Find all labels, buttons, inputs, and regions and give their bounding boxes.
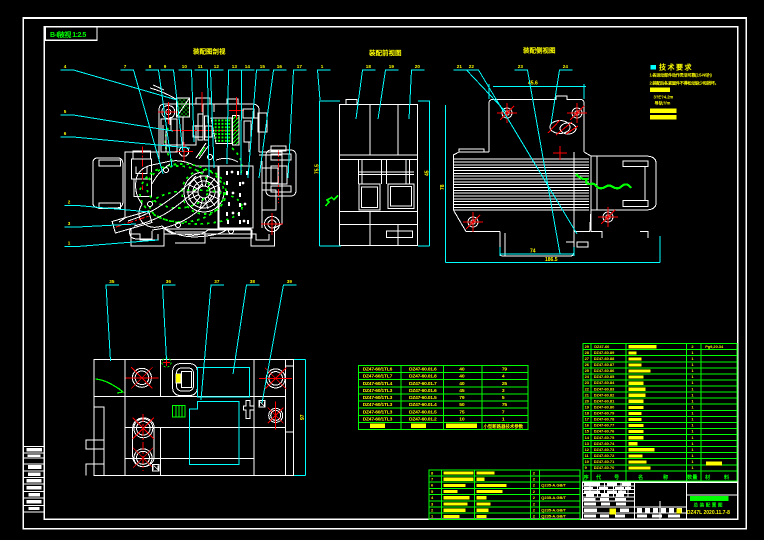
svg-text:DZ47-60: DZ47-60: [594, 344, 609, 349]
svg-text:78: 78: [440, 184, 446, 190]
svg-text:Pg9,20.34: Pg9,20.34: [705, 344, 724, 349]
svg-text:20: 20: [415, 64, 421, 69]
svg-text:小型断路器技术参数: 小型断路器技术参数: [484, 423, 524, 430]
svg-text:DZ47-60.78: DZ47-60.78: [594, 417, 615, 422]
svg-text:DZ47-60.83: DZ47-60.83: [594, 386, 615, 391]
svg-text:14: 14: [245, 64, 251, 69]
svg-text:50: 50: [459, 402, 465, 408]
svg-text:16: 16: [277, 64, 283, 69]
svg-text:Q235-A.GB/T: Q235-A.GB/T: [541, 508, 566, 513]
svg-text:25: 25: [502, 381, 508, 387]
svg-text:Q235-A.GB/T: Q235-A.GB/T: [541, 514, 566, 519]
svg-text:75: 75: [459, 409, 465, 415]
svg-text:2.装配后各紧固件不得松动缺少和损坏。: 2.装配后各紧固件不得松动缺少和损坏。: [650, 80, 719, 87]
svg-text:总装配置图: 总装配置图: [694, 502, 724, 509]
svg-text:45: 45: [459, 388, 465, 394]
svg-text:37: 37: [214, 279, 220, 284]
svg-text:9: 9: [164, 64, 167, 69]
svg-text:23: 23: [518, 64, 524, 69]
svg-text:数量: 数量: [687, 473, 698, 481]
svg-text:序: 序: [584, 473, 590, 481]
svg-text:称: 称: [663, 473, 669, 481]
svg-text:7: 7: [124, 64, 127, 69]
svg-text:75.5: 75.5: [315, 164, 321, 174]
svg-text:材: 材: [704, 473, 711, 481]
svg-text:DZ47-60.71: DZ47-60.71: [594, 459, 615, 464]
svg-text:DZ47-60.87: DZ47-60.87: [594, 362, 615, 367]
svg-text:DZ47-60.79: DZ47-60.79: [594, 411, 615, 416]
svg-text:名: 名: [638, 473, 643, 481]
svg-text:装配前视图: 装配前视图: [368, 48, 402, 57]
svg-text:17: 17: [585, 417, 589, 422]
svg-text:DZ47-60.75: DZ47-60.75: [594, 435, 615, 440]
svg-text:97: 97: [300, 414, 306, 420]
svg-text:DZ47-60.01.5: DZ47-60.01.5: [409, 395, 437, 401]
svg-text:40: 40: [459, 367, 465, 373]
svg-text:DZ47-60.01.6: DZ47-60.01.6: [409, 388, 437, 394]
svg-text:DZ47-60/1TL4: DZ47-60/1TL4: [363, 381, 393, 387]
svg-text:45: 45: [425, 170, 431, 176]
svg-text:40: 40: [459, 381, 465, 387]
svg-text:18: 18: [366, 64, 372, 69]
svg-text:DZ47-60.88: DZ47-60.88: [594, 356, 615, 361]
svg-text:74: 74: [530, 249, 536, 255]
svg-text:39: 39: [287, 279, 293, 284]
svg-text:75: 75: [502, 402, 508, 408]
svg-text:DZ47-60.85: DZ47-60.85: [594, 374, 615, 379]
svg-text:1.各运动部件动作灵活可靠(2.5-N5(h): 1.各运动部件动作灵活可靠(2.5-N5(h): [650, 72, 713, 79]
svg-text:号: 号: [614, 473, 619, 481]
svg-text:79: 79: [459, 395, 465, 401]
svg-text:36: 36: [166, 279, 172, 284]
svg-text:DZ47-60/1TL3: DZ47-60/1TL3: [363, 395, 393, 401]
svg-text:22: 22: [469, 64, 475, 69]
svg-text:DZ47-60.01.2: DZ47-60.01.2: [409, 417, 437, 423]
svg-text:DZ47-60.81: DZ47-60.81: [594, 398, 615, 403]
svg-text:装配侧视图: 装配侧视图: [522, 46, 556, 55]
svg-text:DZ47-60/1TL7: DZ47-60/1TL7: [363, 374, 393, 380]
svg-text:40: 40: [459, 374, 465, 380]
svg-text:DZ47-60.89: DZ47-60.89: [594, 350, 615, 355]
svg-text:DZ47-60.86: DZ47-60.86: [594, 368, 615, 373]
svg-text:1: 1: [321, 64, 324, 69]
svg-text:19: 19: [389, 64, 395, 69]
svg-text:DZ47-60.01.7: DZ47-60.01.7: [409, 381, 437, 387]
svg-text:38: 38: [250, 279, 256, 284]
svg-text:8: 8: [149, 64, 152, 69]
svg-text:11: 11: [198, 64, 203, 69]
svg-text:15: 15: [260, 64, 266, 69]
svg-text:27: 27: [585, 356, 589, 361]
svg-text:DZ47-60/1TL3: DZ47-60/1TL3: [363, 402, 393, 408]
svg-text:DZ47-60.01.5: DZ47-60.01.5: [409, 409, 437, 415]
svg-text:装配图剖视: 装配图剖视: [192, 47, 226, 56]
svg-text:3?E?4.2m: 3?E?4.2m: [654, 94, 674, 99]
svg-text:DZ47-60.77: DZ47-60.77: [594, 423, 615, 428]
svg-text:DZ47L 2020.11.7-8: DZ47L 2020.11.7-8: [687, 510, 730, 516]
svg-text:DZ47-60.01.6: DZ47-60.01.6: [409, 367, 437, 373]
svg-text:5: 5: [64, 109, 67, 114]
svg-text:12: 12: [214, 64, 220, 69]
svg-text:10: 10: [182, 64, 188, 69]
svg-text:DZ47-60.01.4: DZ47-60.01.4: [409, 402, 437, 408]
svg-text:DZ47-60.72: DZ47-60.72: [594, 453, 615, 458]
svg-text:35: 35: [109, 279, 115, 284]
svg-text:10: 10: [459, 417, 465, 423]
svg-text:6: 6: [64, 131, 67, 136]
svg-text:技术要求: 技术要求: [659, 63, 693, 72]
svg-text:DZ47-60.84: DZ47-60.84: [594, 380, 615, 385]
svg-text:DZ47-60.74: DZ47-60.74: [594, 441, 615, 446]
svg-text:B-I陂视 1:2.5: B-I陂视 1:2.5: [50, 30, 86, 39]
svg-text:DZ47-60/1TL3: DZ47-60/1TL3: [363, 409, 393, 415]
svg-text:DZ47-60.70: DZ47-60.70: [594, 465, 615, 470]
svg-text:1: 1: [68, 241, 71, 246]
svg-text:导轨?/m: 导轨?/m: [655, 100, 671, 107]
svg-text:DZ47-60/1TL6: DZ47-60/1TL6: [363, 367, 393, 373]
svg-text:DZ47-60.76: DZ47-60.76: [594, 429, 615, 434]
svg-text:10: 10: [585, 459, 589, 464]
svg-text:79: 79: [502, 367, 508, 373]
svg-text:21: 21: [457, 64, 463, 69]
svg-text:DZ47-60.82: DZ47-60.82: [594, 392, 615, 397]
svg-text:24: 24: [563, 64, 569, 69]
svg-text:料: 料: [724, 473, 730, 481]
svg-text:DZ47-60.80: DZ47-60.80: [594, 405, 615, 410]
svg-text:186.5: 186.5: [545, 257, 558, 263]
svg-text:13: 13: [232, 64, 238, 69]
svg-text:4: 4: [64, 64, 67, 69]
svg-text:DZ47-60.73: DZ47-60.73: [594, 447, 615, 452]
svg-text:Q235-A.GB/T: Q235-A.GB/T: [541, 483, 566, 488]
svg-text:17: 17: [297, 64, 303, 69]
svg-text:DZ47-60/1TL3: DZ47-60/1TL3: [363, 417, 393, 423]
svg-text:DZ47-60/1TL3: DZ47-60/1TL3: [363, 388, 393, 394]
svg-text:代: 代: [595, 473, 602, 481]
svg-text:2: 2: [68, 200, 71, 205]
svg-text:Q235-A.GB/T: Q235-A.GB/T: [541, 495, 566, 500]
svg-text:20: 20: [585, 398, 589, 403]
svg-text:3: 3: [68, 221, 71, 226]
svg-text:DZ47-60.01.8: DZ47-60.01.8: [409, 374, 437, 380]
